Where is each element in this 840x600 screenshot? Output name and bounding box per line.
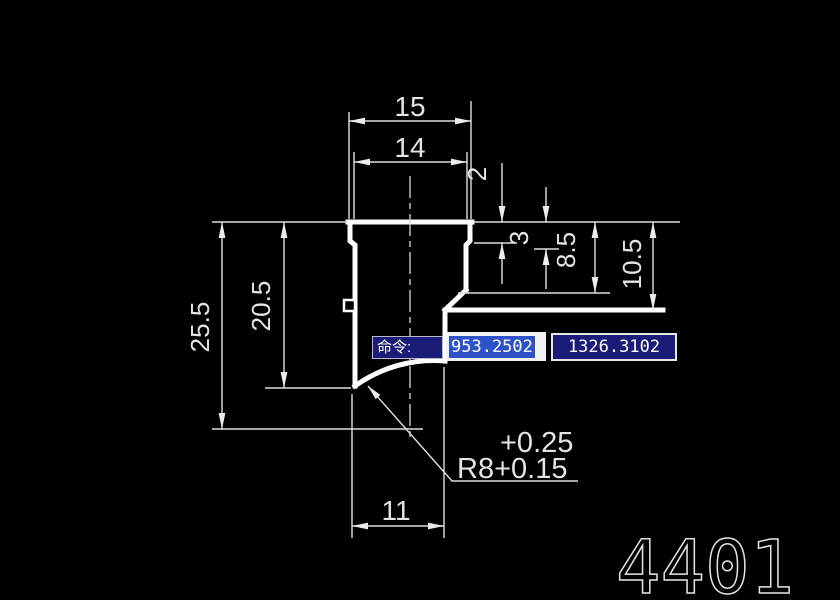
dim-height-total-label: 25.5 (185, 302, 215, 353)
dim-step2-label: 3 (504, 231, 534, 245)
cad-drawing: 15 14 2 3 8.5 10.5 25.5 20.5 11 +0.25 R8… (0, 0, 840, 600)
command-prompt-box[interactable]: 命令: (372, 336, 443, 359)
part-right-edge (466, 222, 470, 290)
coordinate-x-value: 953.2502 (449, 336, 535, 358)
dim-step1-label: 2 (462, 167, 492, 181)
drawing-number: 4401 (616, 525, 794, 600)
part-outline (344, 222, 663, 386)
part-fillet-arc (355, 361, 445, 386)
dim-height-body-label: 20.5 (246, 281, 276, 332)
coordinate-x-field[interactable]: 953.2502 (446, 332, 546, 361)
dim-width-top-label: 15 (394, 91, 425, 122)
cad-viewport: 15 14 2 3 8.5 10.5 25.5 20.5 11 +0.25 R8… (0, 0, 840, 600)
snap-marker (344, 300, 355, 311)
coordinate-y-value: 1326.3102 (568, 337, 660, 357)
dim-width-bottom-label: 11 (381, 495, 410, 526)
dim-width-upper-label: 14 (394, 132, 425, 163)
dim-flange-label: 10.5 (617, 239, 647, 290)
coordinate-y-field[interactable]: 1326.3102 (551, 333, 677, 361)
dim-shoulder-label: 8.5 (551, 232, 581, 268)
radius-label: R8+0.15 (457, 453, 567, 485)
command-prompt-label: 命令: (377, 339, 411, 356)
